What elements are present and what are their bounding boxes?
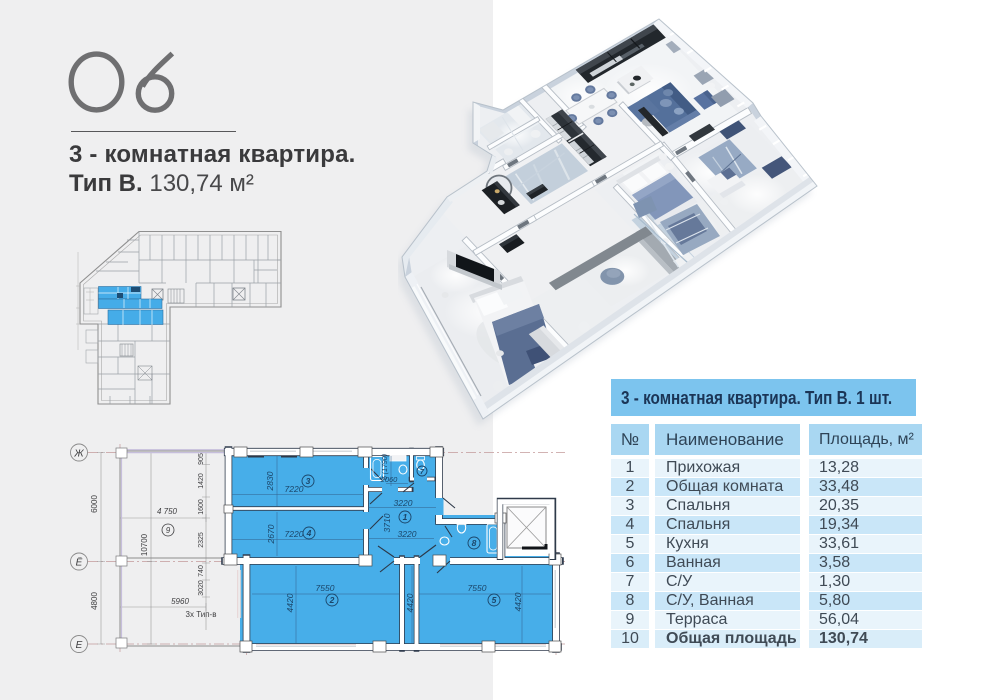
- svg-text:4 750: 4 750: [157, 507, 178, 516]
- svg-text:4: 4: [306, 528, 312, 538]
- svg-text:3710: 3710: [382, 513, 392, 532]
- svg-text:2: 2: [329, 595, 335, 605]
- svg-text:1: 1: [403, 512, 408, 522]
- svg-text:3220: 3220: [398, 529, 417, 539]
- svg-text:Ж: Ж: [73, 449, 84, 460]
- svg-text:2830: 2830: [265, 471, 275, 491]
- svg-text:2670: 2670: [266, 524, 276, 544]
- svg-text:Ё: Ё: [76, 557, 83, 569]
- svg-text:740: 740: [198, 565, 205, 577]
- svg-text:3х Тип-в: 3х Тип-в: [186, 610, 217, 619]
- svg-text:5: 5: [492, 595, 497, 605]
- svg-text:1420: 1420: [198, 473, 205, 489]
- svg-text:Е: Е: [76, 640, 83, 651]
- svg-text:6000: 6000: [90, 495, 99, 513]
- svg-text:905: 905: [198, 453, 205, 465]
- svg-text:8: 8: [472, 538, 477, 548]
- svg-text:3: 3: [306, 476, 311, 486]
- svg-text:4420: 4420: [513, 592, 523, 611]
- svg-text:3220: 3220: [394, 498, 413, 508]
- svg-text:4800: 4800: [90, 592, 99, 610]
- svg-text:1600: 1600: [198, 499, 205, 515]
- svg-text:9: 9: [166, 526, 171, 535]
- svg-text:4420: 4420: [285, 593, 295, 612]
- svg-text:2325: 2325: [198, 532, 205, 548]
- svg-text:4420: 4420: [405, 593, 415, 612]
- svg-text:3020: 3020: [198, 580, 205, 596]
- svg-text:10700: 10700: [140, 533, 149, 556]
- svg-text:7550: 7550: [316, 583, 335, 593]
- svg-text:7550: 7550: [468, 583, 487, 593]
- svg-text:5960: 5960: [171, 597, 189, 606]
- svg-text:7220: 7220: [285, 529, 304, 539]
- svg-text:6 (1790): 6 (1790): [382, 454, 389, 480]
- svg-text:7220: 7220: [285, 484, 304, 494]
